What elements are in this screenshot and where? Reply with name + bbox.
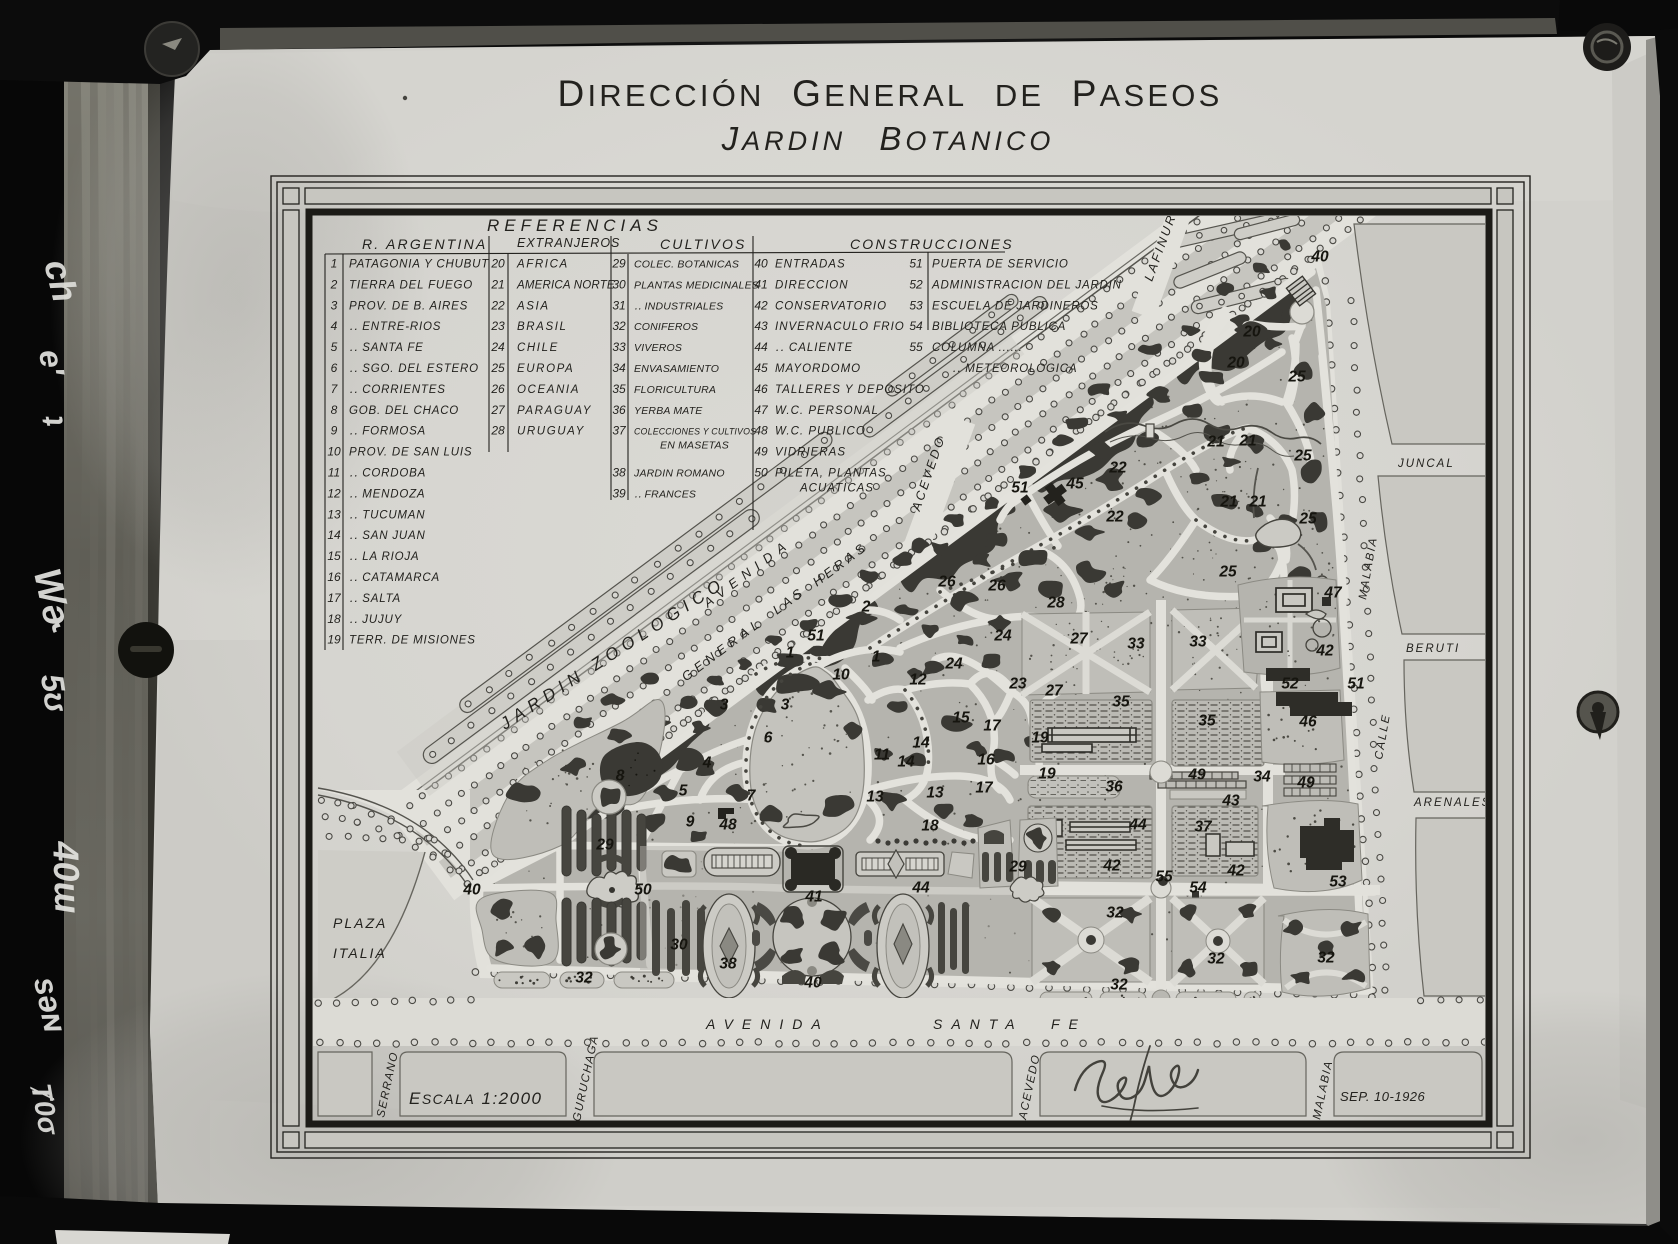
svg-text:42: 42 bbox=[754, 298, 768, 312]
svg-text:53: 53 bbox=[909, 298, 923, 312]
svg-text:14: 14 bbox=[897, 754, 915, 771]
svg-text:6: 6 bbox=[331, 361, 338, 375]
svg-text:18: 18 bbox=[921, 818, 939, 835]
svg-text:35: 35 bbox=[1112, 694, 1130, 711]
svg-text:23: 23 bbox=[1008, 676, 1027, 693]
svg-text:TIERRA DEL FUEGO: TIERRA DEL FUEGO bbox=[349, 279, 473, 291]
svg-text:12: 12 bbox=[327, 486, 341, 500]
svg-text:49: 49 bbox=[1296, 775, 1315, 792]
svg-text:3: 3 bbox=[331, 298, 338, 312]
svg-text:44: 44 bbox=[911, 880, 930, 897]
svg-text:55: 55 bbox=[1155, 869, 1173, 886]
svg-text:20: 20 bbox=[490, 257, 505, 271]
svg-text:16: 16 bbox=[977, 752, 995, 769]
svg-text:20: 20 bbox=[1242, 324, 1261, 341]
svg-text:10: 10 bbox=[832, 667, 850, 684]
svg-text:46: 46 bbox=[754, 382, 768, 396]
svg-text:38: 38 bbox=[719, 956, 737, 973]
svg-text:ENTRADAS: ENTRADAS bbox=[775, 259, 846, 271]
svg-text:5ʊ: 5ʊ bbox=[34, 672, 75, 715]
svg-text:54: 54 bbox=[909, 319, 923, 333]
svg-text:26: 26 bbox=[490, 382, 505, 396]
svg-text:25: 25 bbox=[1298, 511, 1317, 528]
svg-text:․․ LA RIOJA: ․․ LA RIOJA bbox=[349, 551, 419, 563]
svg-text:45: 45 bbox=[1065, 476, 1084, 493]
svg-text:49: 49 bbox=[1187, 767, 1206, 784]
svg-text:36: 36 bbox=[612, 403, 626, 417]
svg-text:41: 41 bbox=[754, 277, 767, 291]
svg-text:․․ JUJUY: ․․ JUJUY bbox=[349, 614, 403, 626]
svg-text:FLORICULTURA: FLORICULTURA bbox=[634, 384, 716, 396]
svg-text:40: 40 bbox=[462, 882, 481, 899]
svg-text:ADMINISTRACION DEL JARDIN: ADMINISTRACION DEL JARDIN bbox=[931, 279, 1122, 291]
svg-text:32: 32 bbox=[1110, 977, 1128, 994]
svg-text:24: 24 bbox=[490, 340, 505, 354]
svg-text:46: 46 bbox=[1298, 714, 1317, 731]
svg-text:16: 16 bbox=[327, 570, 341, 584]
svg-text:JUNCAL: JUNCAL bbox=[1397, 458, 1455, 470]
svg-text:AVENIDA: AVENIDA bbox=[705, 1016, 830, 1032]
svg-text:53: 53 bbox=[1329, 874, 1347, 891]
svg-text:24: 24 bbox=[944, 656, 963, 673]
svg-text:PUERTA DE SERVICIO: PUERTA DE SERVICIO bbox=[932, 259, 1069, 271]
svg-text:2: 2 bbox=[330, 277, 338, 291]
svg-text:․․ FRANCES: ․․ FRANCES bbox=[634, 488, 696, 500]
svg-text:22: 22 bbox=[1108, 460, 1127, 477]
svg-text:33: 33 bbox=[1127, 636, 1145, 653]
svg-text:7: 7 bbox=[747, 788, 757, 805]
svg-text:4: 4 bbox=[331, 319, 338, 333]
svg-text:2: 2 bbox=[861, 599, 871, 616]
svg-text:48: 48 bbox=[754, 424, 768, 438]
svg-text:19: 19 bbox=[1031, 730, 1049, 747]
svg-text:32: 32 bbox=[1106, 905, 1124, 922]
svg-text:R. ARGENTINA: R. ARGENTINA bbox=[362, 236, 487, 252]
svg-text:W.C. PERSONAL: W.C. PERSONAL bbox=[775, 405, 879, 417]
svg-text:22: 22 bbox=[1105, 509, 1124, 526]
svg-text:30: 30 bbox=[670, 937, 688, 954]
svg-text:26: 26 bbox=[987, 578, 1006, 595]
svg-text:38: 38 bbox=[612, 466, 626, 480]
svg-text:36: 36 bbox=[1105, 779, 1123, 796]
svg-text:․․ SGO. DEL ESTERO: ․․ SGO. DEL ESTERO bbox=[349, 363, 479, 375]
svg-text:8: 8 bbox=[616, 768, 625, 785]
svg-text:25: 25 bbox=[1287, 369, 1306, 386]
svg-text:․․ CORRIENTES: ․․ CORRIENTES bbox=[349, 384, 446, 396]
svg-text:W.C. PUBLICO: W.C. PUBLICO bbox=[775, 426, 866, 438]
svg-text:40: 40 bbox=[754, 257, 768, 271]
svg-text:DIRECCION: DIRECCION bbox=[775, 279, 849, 291]
svg-text:ASIA: ASIA bbox=[516, 300, 550, 312]
svg-text:44: 44 bbox=[754, 340, 768, 354]
svg-text:VIVEROS: VIVEROS bbox=[634, 342, 682, 354]
svg-text:3: 3 bbox=[720, 697, 729, 714]
svg-text:AFRICA: AFRICA bbox=[516, 259, 569, 271]
svg-text:23: 23 bbox=[490, 319, 505, 333]
svg-text:4: 4 bbox=[702, 755, 712, 772]
svg-text:․․ CORDOBA: ․․ CORDOBA bbox=[349, 468, 426, 480]
svg-text:17: 17 bbox=[975, 780, 994, 797]
svg-text:ACUATICAS: ACUATICAS bbox=[799, 482, 874, 494]
svg-text:AMERICA NORTE: AMERICA NORTE bbox=[516, 279, 615, 291]
svg-text:42: 42 bbox=[1315, 643, 1334, 660]
svg-text:6: 6 bbox=[764, 730, 773, 747]
svg-text:CONSTRUCCIONES: CONSTRUCCIONES bbox=[850, 236, 1014, 252]
svg-text:COLUMNA ......: COLUMNA ...... bbox=[932, 342, 1023, 354]
svg-text:32: 32 bbox=[1317, 950, 1335, 967]
svg-text:12: 12 bbox=[909, 672, 927, 689]
svg-text:FE: FE bbox=[1051, 1016, 1087, 1032]
svg-text:13: 13 bbox=[866, 789, 884, 806]
svg-text:27: 27 bbox=[1069, 631, 1089, 648]
svg-text:OCEANIA: OCEANIA bbox=[517, 384, 580, 396]
svg-text:29: 29 bbox=[1008, 859, 1027, 876]
svg-text:․․ SANTA FE: ․․ SANTA FE bbox=[349, 342, 424, 354]
svg-text:1: 1 bbox=[872, 649, 881, 666]
svg-text:ESCUELA DE JARDINEROS: ESCUELA DE JARDINEROS bbox=[932, 300, 1099, 312]
svg-text:32: 32 bbox=[575, 970, 593, 987]
svg-text:40: 40 bbox=[803, 975, 822, 992]
svg-text:14: 14 bbox=[912, 735, 930, 752]
svg-text:28: 28 bbox=[490, 424, 505, 438]
svg-text:22: 22 bbox=[490, 298, 505, 312]
svg-text:․․ TUCUMAN: ․․ TUCUMAN bbox=[349, 509, 425, 521]
svg-text:PLANTAS MEDICINALES: PLANTAS MEDICINALES bbox=[634, 279, 759, 291]
svg-text:37: 37 bbox=[612, 424, 627, 438]
svg-text:9: 9 bbox=[331, 424, 338, 438]
svg-text:JARDIN ROMANO: JARDIN ROMANO bbox=[633, 468, 725, 480]
svg-text:43: 43 bbox=[1221, 793, 1240, 810]
svg-text:․․ SALTA: ․․ SALTA bbox=[349, 593, 401, 605]
svg-text:․․ CATAMARCA: ․․ CATAMARCA bbox=[349, 572, 440, 584]
svg-text:PLAZA: PLAZA bbox=[333, 915, 387, 931]
svg-text:31: 31 bbox=[612, 298, 625, 312]
svg-text:17: 17 bbox=[327, 591, 342, 605]
svg-text:CONSERVATORIO: CONSERVATORIO bbox=[775, 300, 887, 312]
svg-text:52: 52 bbox=[1281, 676, 1299, 693]
svg-text:15: 15 bbox=[952, 710, 970, 727]
svg-text:39: 39 bbox=[612, 486, 626, 500]
svg-text:13: 13 bbox=[327, 507, 341, 521]
svg-text:29: 29 bbox=[611, 257, 626, 271]
svg-text:50: 50 bbox=[754, 466, 768, 480]
svg-text:EUROPA: EUROPA bbox=[517, 363, 574, 375]
svg-text:14: 14 bbox=[327, 528, 341, 542]
svg-text:1: 1 bbox=[331, 257, 338, 271]
svg-text:SANTA: SANTA bbox=[933, 1016, 1024, 1032]
svg-text:MAYORDOMO: MAYORDOMO bbox=[775, 363, 861, 375]
svg-text:19: 19 bbox=[1038, 766, 1056, 783]
svg-text:8: 8 bbox=[331, 403, 338, 417]
svg-text:42: 42 bbox=[1226, 863, 1245, 880]
svg-text:COLEC. BOTANICAS: COLEC. BOTANICAS bbox=[634, 259, 739, 271]
svg-text:21: 21 bbox=[1238, 433, 1256, 450]
svg-text:PROV. DE SAN LUIS: PROV. DE SAN LUIS bbox=[349, 447, 472, 459]
svg-text:․․ INDUSTRIALES: ․․ INDUSTRIALES bbox=[634, 300, 723, 312]
svg-text:․․ MENDOZA: ․․ MENDOZA bbox=[349, 488, 425, 500]
svg-text:ESCALA 1:2000: ESCALA 1:2000 bbox=[409, 1089, 543, 1108]
svg-text:21: 21 bbox=[1248, 494, 1266, 511]
svg-text:PATAGONIA Y CHUBUT: PATAGONIA Y CHUBUT bbox=[349, 259, 489, 271]
svg-text:JARDIN BOTANICO: JARDIN BOTANICO bbox=[721, 120, 1055, 157]
svg-text:34: 34 bbox=[612, 361, 626, 375]
svg-text:13: 13 bbox=[926, 785, 944, 802]
svg-text:TERR. DE MISIONES: TERR. DE MISIONES bbox=[349, 635, 476, 647]
svg-text:TALLERES Y DEPOSITO: TALLERES Y DEPOSITO bbox=[775, 384, 925, 396]
svg-text:54: 54 bbox=[1189, 880, 1207, 897]
svg-text:47: 47 bbox=[754, 403, 769, 417]
svg-text:21: 21 bbox=[490, 277, 504, 291]
svg-text:21: 21 bbox=[1206, 434, 1224, 451]
svg-text:25: 25 bbox=[490, 361, 505, 375]
svg-text:․․ ENTRE-RIOS: ․․ ENTRE-RIOS bbox=[349, 321, 441, 333]
svg-text:PILETA, PLANTAS: PILETA, PLANTAS bbox=[775, 468, 887, 480]
svg-text:51: 51 bbox=[807, 628, 824, 645]
svg-text:35: 35 bbox=[1198, 713, 1216, 730]
svg-text:45: 45 bbox=[754, 361, 768, 375]
svg-text:5: 5 bbox=[331, 340, 338, 354]
svg-text:DIRECCIÓN GENERAL DE PASEOS: DIRECCIÓN GENERAL DE PASEOS bbox=[558, 73, 1223, 114]
svg-text:PROV. DE B. AIRES: PROV. DE B. AIRES bbox=[349, 300, 468, 312]
svg-text:19: 19 bbox=[327, 633, 341, 647]
svg-text:ITALIA: ITALIA bbox=[333, 945, 387, 961]
svg-text:24: 24 bbox=[993, 628, 1012, 645]
svg-text:35: 35 bbox=[612, 382, 626, 396]
svg-text:47: 47 bbox=[1323, 585, 1343, 602]
svg-text:CULTIVOS: CULTIVOS bbox=[660, 236, 747, 252]
svg-text:PARAGUAY: PARAGUAY bbox=[517, 405, 592, 417]
svg-text:BRASIL: BRASIL bbox=[517, 321, 568, 333]
svg-text:GOB. DEL CHACO: GOB. DEL CHACO bbox=[349, 405, 459, 417]
svg-text:26: 26 bbox=[937, 574, 956, 591]
svg-text:YERBA MATE: YERBA MATE bbox=[634, 405, 703, 417]
svg-text:3: 3 bbox=[781, 697, 790, 714]
svg-text:․․ SAN JUAN: ․․ SAN JUAN bbox=[349, 530, 426, 542]
svg-text:CONIFEROS: CONIFEROS bbox=[634, 321, 698, 333]
svg-text:11: 11 bbox=[328, 466, 340, 480]
svg-text:BIBLIOTECA PUBLICA: BIBLIOTECA PUBLICA bbox=[932, 321, 1066, 333]
svg-text:32: 32 bbox=[1207, 951, 1225, 968]
svg-text:INVERNACULO FRIO: INVERNACULO FRIO bbox=[775, 321, 905, 333]
svg-text:18: 18 bbox=[327, 612, 341, 626]
svg-text:40: 40 bbox=[1310, 249, 1329, 266]
svg-text:50: 50 bbox=[634, 882, 652, 899]
svg-text:49: 49 bbox=[754, 445, 768, 459]
svg-text:․․ METEOROLOGICA: ․․ METEOROLOGICA bbox=[952, 363, 1077, 375]
svg-text:․․ CALIENTE: ․․ CALIENTE bbox=[775, 342, 853, 354]
svg-text:27: 27 bbox=[490, 403, 506, 417]
svg-text:1: 1 bbox=[786, 645, 795, 662]
svg-text:42: 42 bbox=[1102, 858, 1121, 875]
svg-text:20: 20 bbox=[1226, 355, 1245, 372]
svg-text:51: 51 bbox=[909, 257, 922, 271]
svg-text:17: 17 bbox=[983, 718, 1002, 735]
svg-text:48: 48 bbox=[718, 817, 737, 834]
svg-text:URUGUAY: URUGUAY bbox=[517, 426, 585, 438]
svg-text:27: 27 bbox=[1044, 683, 1064, 700]
svg-text:52: 52 bbox=[909, 277, 923, 291]
svg-text:44: 44 bbox=[1128, 817, 1147, 834]
svg-text:25: 25 bbox=[1218, 564, 1237, 581]
svg-text:55: 55 bbox=[909, 340, 923, 354]
svg-text:21: 21 bbox=[1219, 494, 1237, 511]
svg-text:5: 5 bbox=[679, 783, 688, 800]
svg-text:15: 15 bbox=[327, 549, 341, 563]
svg-text:37: 37 bbox=[1194, 819, 1213, 836]
svg-text:51: 51 bbox=[1347, 676, 1364, 693]
svg-text:29: 29 bbox=[595, 837, 614, 854]
svg-text:43: 43 bbox=[754, 319, 768, 333]
svg-text:9: 9 bbox=[686, 814, 695, 831]
svg-text:VIDRIERAS: VIDRIERAS bbox=[775, 447, 846, 459]
svg-text:COLECCIONES Y CULTIVOS: COLECCIONES Y CULTIVOS bbox=[634, 427, 756, 437]
svg-text:10: 10 bbox=[327, 445, 341, 459]
svg-text:CHILE: CHILE bbox=[517, 342, 559, 354]
svg-text:51: 51 bbox=[1011, 480, 1028, 497]
svg-text:REFERENCIAS: REFERENCIAS bbox=[487, 216, 663, 235]
svg-text:40ɯ: 40ɯ bbox=[45, 840, 89, 914]
svg-text:EN MASETAS: EN MASETAS bbox=[660, 440, 729, 452]
svg-text:ARENALES: ARENALES bbox=[1413, 797, 1491, 809]
svg-text:41: 41 bbox=[804, 889, 822, 906]
svg-text:11: 11 bbox=[874, 747, 890, 764]
svg-text:33: 33 bbox=[1189, 634, 1207, 651]
svg-text:․․ FORMOSA: ․․ FORMOSA bbox=[349, 426, 426, 438]
svg-text:ENVASAMIENTO: ENVASAMIENTO bbox=[634, 363, 719, 375]
svg-text:SEP. 10-1926: SEP. 10-1926 bbox=[1340, 1089, 1426, 1104]
svg-text:30: 30 bbox=[612, 277, 626, 291]
svg-text:33: 33 bbox=[612, 340, 626, 354]
svg-text:32: 32 bbox=[612, 319, 626, 333]
svg-text:BERUTI: BERUTI bbox=[1406, 643, 1460, 655]
svg-text:28: 28 bbox=[1046, 595, 1065, 612]
svg-text:25: 25 bbox=[1293, 448, 1312, 465]
svg-text:EXTRANJEROS: EXTRANJEROS bbox=[517, 236, 620, 250]
svg-text:34: 34 bbox=[1253, 769, 1271, 786]
